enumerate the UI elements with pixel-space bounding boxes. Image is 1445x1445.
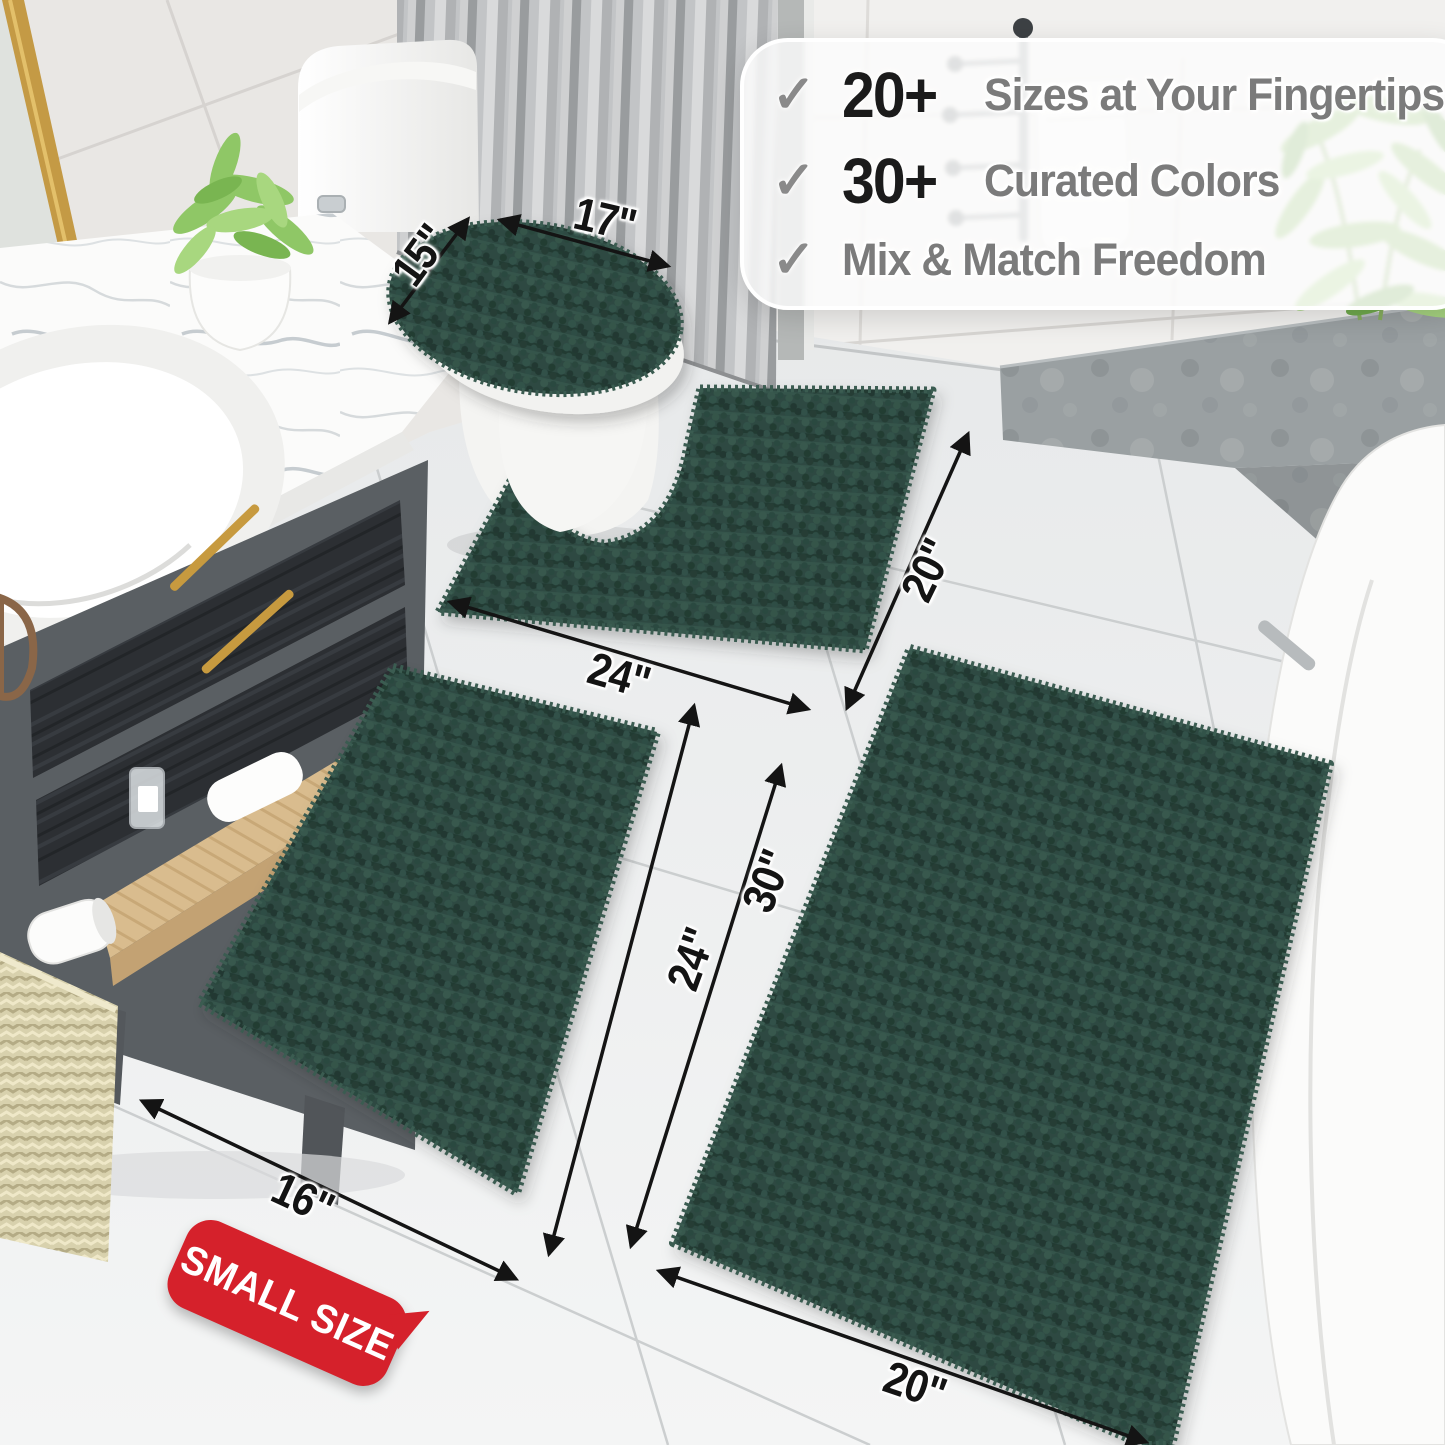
- glass-bottle: [130, 768, 164, 828]
- feature-callout: ✓ 20+ Sizes at Your Fingertips ✓ 30+ Cur…: [740, 38, 1445, 310]
- callout-stat: 30+: [842, 144, 960, 218]
- callout-stat: 20+: [842, 58, 960, 132]
- toilet-tank: [298, 40, 479, 232]
- check-icon: ✓: [772, 151, 828, 211]
- callout-label: Mix & Match Freedom: [842, 234, 1266, 286]
- callout-row: ✓ 20+ Sizes at Your Fingertips: [772, 58, 1445, 132]
- callout-label: Curated Colors: [984, 155, 1279, 207]
- product-image-bath-rug-set: 17" 15" 24" 20" 30" 24" 16" 20" SMALL SI…: [0, 0, 1445, 1445]
- check-icon: ✓: [772, 65, 828, 125]
- callout-row: ✓ Mix & Match Freedom: [772, 230, 1445, 290]
- callout-label: Sizes at Your Fingertips: [984, 69, 1444, 121]
- check-icon: ✓: [772, 230, 828, 290]
- callout-row: ✓ 30+ Curated Colors: [772, 144, 1445, 218]
